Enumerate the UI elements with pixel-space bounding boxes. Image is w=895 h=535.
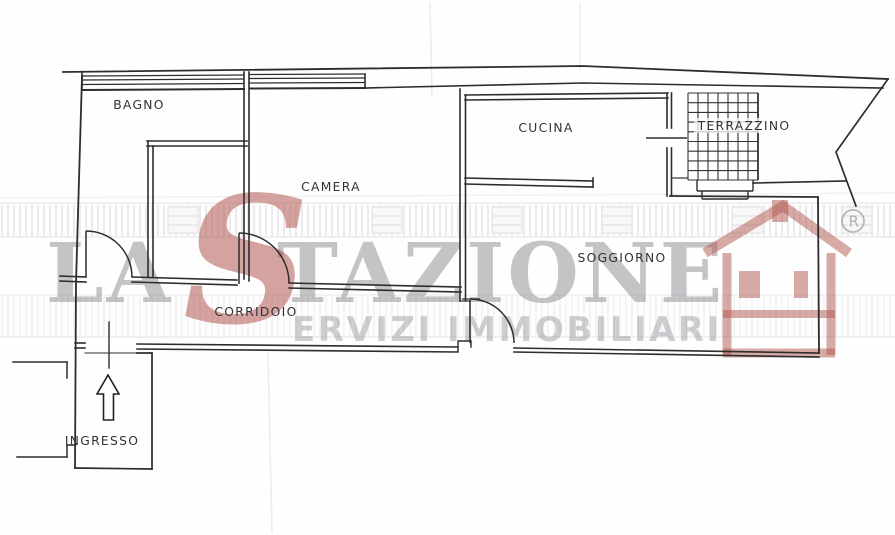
soggiorno-top-wall: [670, 196, 818, 197]
terrazzino-tile-grid: [672, 93, 758, 180]
registered-mark-letter: R: [849, 213, 859, 231]
soggiorno-right-wall: [818, 197, 819, 353]
brand-script-s: S: [183, 159, 309, 364]
floor-plan-drawing: LA TAZIONE S ERVIZI IMMOBILIARI R: [0, 0, 895, 535]
room-label-ingresso: INGRESSO: [65, 434, 139, 448]
room-label-terrazzino: TERRAZZINO: [697, 119, 791, 133]
window-band-right: [250, 74, 365, 89]
window-band-left: [82, 72, 244, 90]
room-label-soggiorno: SOGGIORNO: [578, 251, 667, 265]
room-label-camera: CAMERA: [301, 180, 361, 194]
brand-tagline: ERVIZI IMMOBILIARI: [292, 310, 722, 350]
brand-text-tazione: TAZIONE: [277, 226, 725, 322]
wall-break-symbol: [836, 79, 888, 206]
room-label-corridoio: CORRIDOIO: [214, 305, 297, 319]
room-label-bagno: BAGNO: [113, 98, 165, 112]
room-label-cucina: CUCINA: [518, 121, 573, 135]
brand-text-la: LA: [46, 226, 173, 322]
entrance-arrow-icon: [97, 375, 119, 420]
scanned-floor-plan-page: LA TAZIONE S ERVIZI IMMOBILIARI R: [0, 0, 895, 535]
